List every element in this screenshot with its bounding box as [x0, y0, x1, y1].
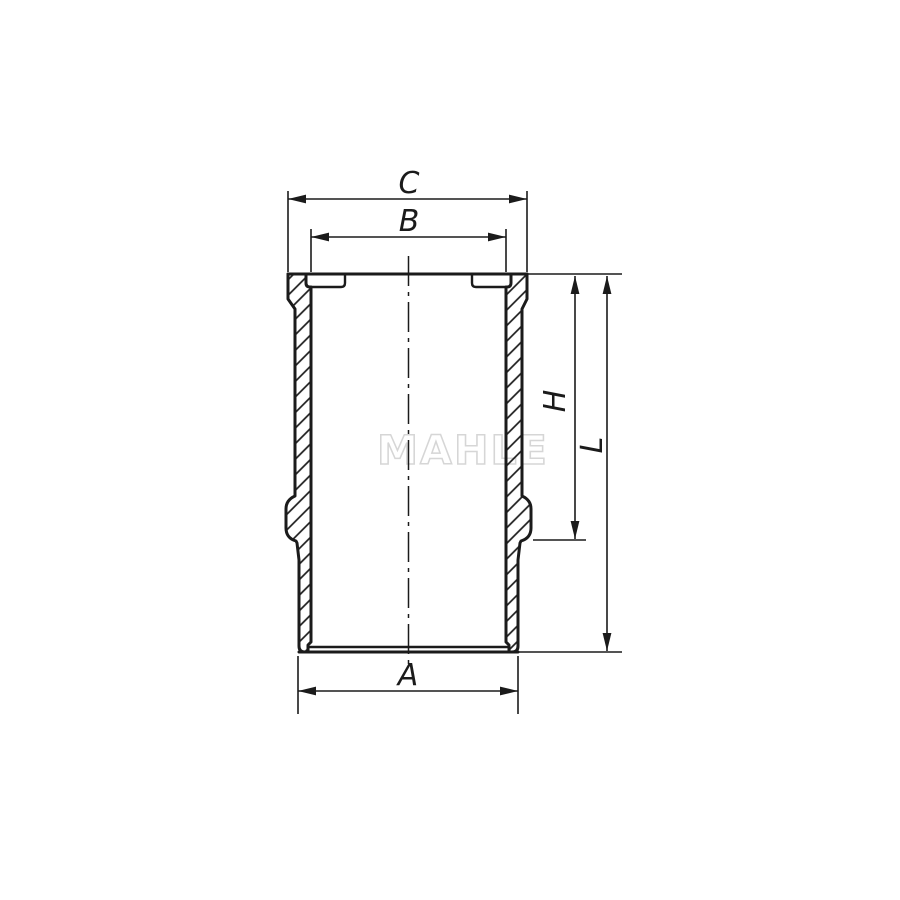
- dim-label-b: B: [399, 204, 420, 239]
- top-groove-right: [472, 274, 506, 287]
- dimension-h: H: [533, 276, 586, 540]
- arrowhead-b-right: [488, 233, 506, 242]
- top-groove-left: [311, 274, 345, 287]
- arrowhead-h-top: [571, 276, 580, 294]
- arrowhead-a-right: [500, 687, 518, 696]
- arrowhead-l-bottom: [603, 633, 612, 651]
- dimension-a: A: [298, 656, 518, 714]
- arrowhead-l-top: [603, 276, 612, 294]
- arrowhead-h-bottom: [571, 521, 580, 539]
- left-wall-section: [286, 274, 311, 652]
- arrowhead-a-left: [298, 687, 316, 696]
- dim-label-a: A: [396, 658, 419, 693]
- dimension-l: L: [575, 276, 611, 651]
- technical-drawing-page: MAHLE C: [0, 0, 900, 900]
- dim-label-c: C: [399, 166, 420, 201]
- arrowhead-c-left: [288, 195, 306, 204]
- dim-label-h: H: [538, 390, 573, 413]
- arrowhead-b-left: [311, 233, 329, 242]
- dim-label-l: L: [575, 437, 610, 454]
- cylinder-liner-section-drawing: MAHLE C: [0, 0, 900, 900]
- arrowhead-c-right: [509, 195, 527, 204]
